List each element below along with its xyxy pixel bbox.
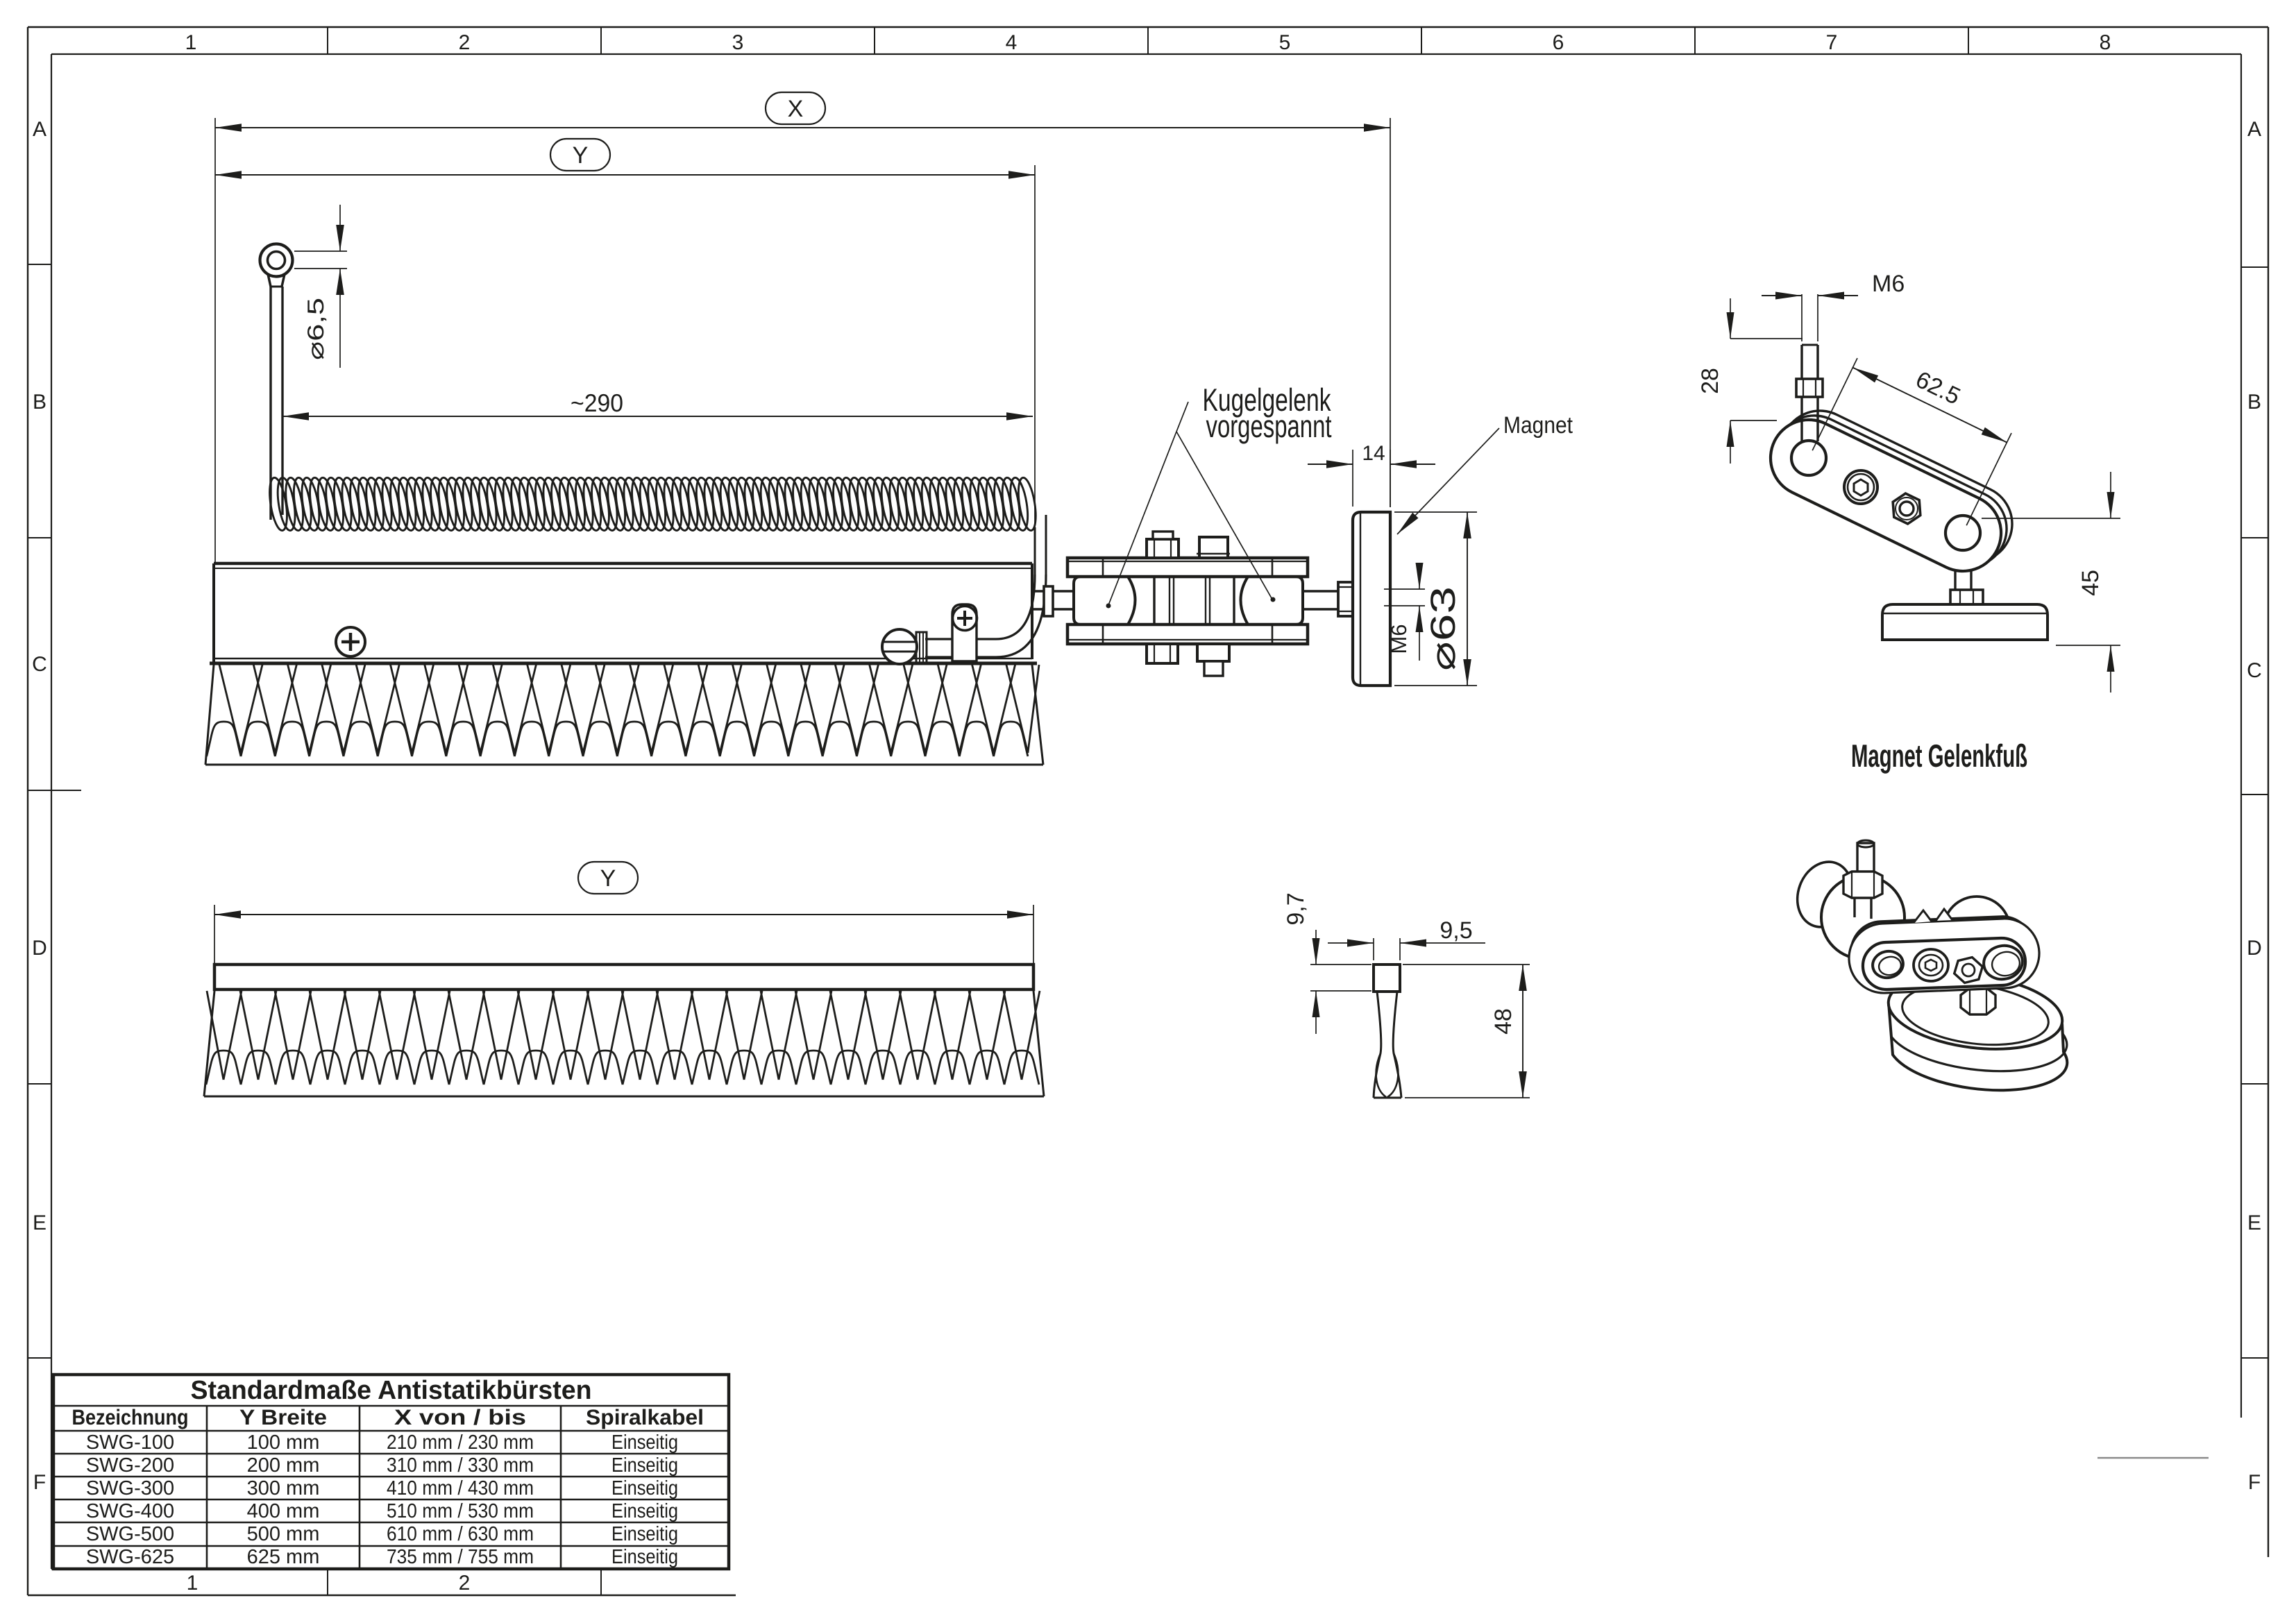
svg-text:D: D — [32, 937, 47, 960]
svg-text:510 mm / 530 mm: 510 mm / 530 mm — [387, 1500, 534, 1522]
svg-text:Y: Y — [600, 865, 616, 892]
svg-text:A: A — [33, 118, 47, 141]
svg-text:610 mm / 630 mm: 610 mm / 630 mm — [387, 1523, 534, 1545]
svg-text:28: 28 — [1697, 368, 1723, 394]
svg-text:E: E — [33, 1212, 47, 1234]
svg-text:8: 8 — [2100, 31, 2111, 54]
svg-text:625 mm: 625 mm — [247, 1546, 320, 1568]
svg-text:Einseitig: Einseitig — [611, 1500, 678, 1522]
svg-text:2: 2 — [459, 1572, 471, 1595]
svg-text:M6: M6 — [1387, 624, 1411, 654]
svg-text:Einseitig: Einseitig — [611, 1523, 678, 1545]
svg-text:B: B — [33, 391, 47, 414]
svg-text:F: F — [2248, 1471, 2261, 1494]
svg-text:9,5: 9,5 — [1440, 917, 1472, 944]
svg-text:14: 14 — [1362, 442, 1385, 465]
svg-text:2: 2 — [459, 31, 471, 54]
svg-text:300 mm: 300 mm — [247, 1477, 320, 1499]
svg-text:Spiralkabel: Spiralkabel — [586, 1405, 704, 1429]
svg-text:vorgespannt: vorgespannt — [1206, 408, 1332, 444]
svg-text:SWG-100: SWG-100 — [86, 1431, 174, 1454]
svg-text:Standardmaße Antistatikbürsten: Standardmaße Antistatikbürsten — [191, 1376, 592, 1405]
svg-text:1: 1 — [187, 1572, 199, 1595]
svg-text:9,7: 9,7 — [1283, 892, 1309, 925]
svg-text:Y Breite: Y Breite — [239, 1405, 327, 1429]
svg-text:SWG-300: SWG-300 — [86, 1477, 174, 1499]
svg-text:Y: Y — [573, 142, 589, 169]
svg-text:4: 4 — [1006, 31, 1018, 54]
svg-text:Einseitig: Einseitig — [611, 1477, 678, 1499]
svg-text:400 mm: 400 mm — [247, 1500, 320, 1522]
svg-text:Magnet Gelenkfuß: Magnet Gelenkfuß — [1851, 738, 2027, 774]
svg-text:SWG-200: SWG-200 — [86, 1454, 174, 1477]
svg-text:SWG-400: SWG-400 — [86, 1500, 174, 1522]
svg-text:Einseitig: Einseitig — [611, 1546, 678, 1568]
svg-text:C: C — [32, 653, 47, 676]
svg-text:SWG-500: SWG-500 — [86, 1523, 174, 1545]
svg-text:310 mm / 330 mm: 310 mm / 330 mm — [387, 1454, 534, 1477]
svg-text:Einseitig: Einseitig — [611, 1454, 678, 1477]
svg-text:45: 45 — [2077, 570, 2104, 596]
svg-text:6: 6 — [1553, 31, 1564, 54]
svg-text:B: B — [2247, 391, 2261, 414]
svg-text:Bezeichnung: Bezeichnung — [72, 1405, 189, 1429]
svg-text:E: E — [2247, 1212, 2261, 1234]
svg-text:X: X — [788, 96, 804, 122]
svg-text:SWG-625: SWG-625 — [86, 1546, 174, 1568]
svg-text:⌀6,5: ⌀6,5 — [303, 298, 328, 360]
svg-text:F: F — [33, 1471, 46, 1494]
svg-text:~290: ~290 — [571, 389, 623, 417]
svg-text:735 mm / 755 mm: 735 mm / 755 mm — [387, 1546, 534, 1568]
svg-text:M6: M6 — [1872, 271, 1905, 297]
svg-text:C: C — [2247, 659, 2262, 682]
svg-text:Magnet: Magnet — [1503, 412, 1573, 439]
svg-text:Einseitig: Einseitig — [611, 1431, 678, 1454]
svg-text:5: 5 — [1279, 31, 1291, 54]
svg-text:A: A — [2247, 118, 2261, 141]
svg-text:3: 3 — [732, 31, 744, 54]
svg-text:200 mm: 200 mm — [247, 1454, 320, 1477]
svg-text:1: 1 — [185, 31, 197, 54]
svg-text:500 mm: 500 mm — [247, 1523, 320, 1545]
svg-text:100 mm: 100 mm — [247, 1431, 320, 1454]
svg-text:⌀63: ⌀63 — [1424, 586, 1462, 671]
svg-text:X von / bis: X von / bis — [394, 1405, 526, 1429]
svg-text:7: 7 — [1826, 31, 1838, 54]
svg-text:410 mm / 430 mm: 410 mm / 430 mm — [387, 1477, 534, 1499]
svg-text:D: D — [2247, 937, 2262, 960]
svg-text:210 mm / 230 mm: 210 mm / 230 mm — [387, 1431, 534, 1454]
svg-text:48: 48 — [1490, 1008, 1517, 1035]
